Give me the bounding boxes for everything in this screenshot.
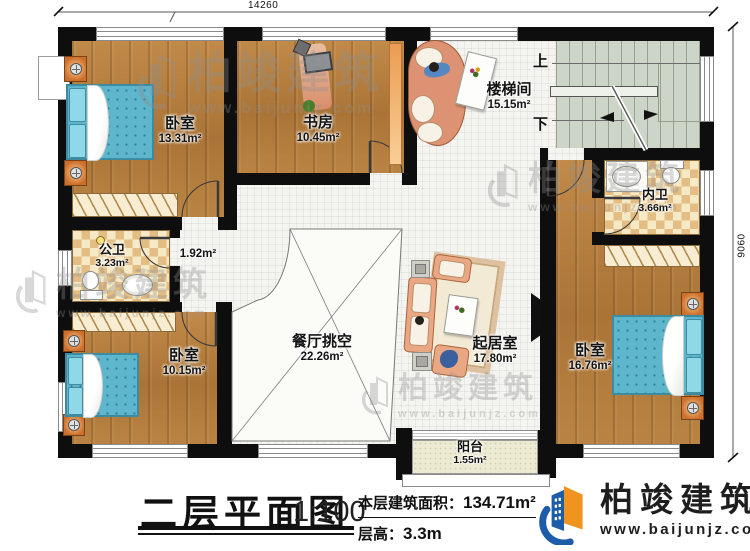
pillow <box>68 387 83 415</box>
nightstand <box>681 396 704 420</box>
wall <box>58 302 182 312</box>
room-area: 15.15m² <box>459 99 559 112</box>
nightstand <box>64 160 87 186</box>
room-name: 公卫 <box>62 243 162 258</box>
stairs-handrail <box>550 86 658 97</box>
window <box>92 444 188 458</box>
room-area: 1.55m² <box>420 455 520 467</box>
wall <box>540 160 556 444</box>
sofa-main <box>403 276 437 354</box>
watermark-logo-icon <box>16 268 50 314</box>
wall <box>218 217 237 230</box>
room-name: 卧室 <box>540 343 640 360</box>
nightstand <box>64 56 87 82</box>
side-table <box>412 352 432 371</box>
toilet-bowl <box>662 167 680 184</box>
brand-name: 柏竣建筑 <box>600 483 750 516</box>
wall <box>592 235 700 245</box>
room-label-hall: 1.92m² <box>168 248 228 261</box>
window <box>583 444 680 458</box>
floor-height-label: 层高： <box>358 526 403 543</box>
room-label-bedroom-top-left: 卧室 13.31m² <box>130 116 230 146</box>
room-name: 卧室 <box>134 348 234 365</box>
wall <box>170 230 180 238</box>
room-label-inner-bath: 内卫 3.66m² <box>605 188 705 214</box>
floor-stats: 本层建筑面积：134.71m² 层高：3.3m <box>358 492 536 544</box>
room-label-stair-hall: 楼梯间 15.15m² <box>459 82 559 112</box>
window <box>258 444 368 458</box>
stairs-leader-up <box>552 63 700 64</box>
person-head <box>415 316 424 325</box>
computer-monitor <box>303 51 333 74</box>
window <box>262 27 386 41</box>
room-label-dining-void: 餐厅挑空 22.26m² <box>272 334 372 364</box>
balcony-railing <box>402 474 550 487</box>
brand-logo: 柏竣建筑 www.baijunjz.com <box>538 483 750 545</box>
room-label-bedroom-bottom-left: 卧室 10.15m² <box>134 348 234 378</box>
person-head <box>429 62 439 72</box>
wall <box>402 173 417 185</box>
floor-area-row: 本层建筑面积：134.71m² <box>358 492 536 518</box>
room-name: 楼梯间 <box>459 82 559 99</box>
wall <box>584 148 714 160</box>
sofa-cushion <box>438 259 466 278</box>
sofa-seat <box>431 253 472 283</box>
room-name: 卧室 <box>130 116 230 133</box>
wall <box>237 173 370 185</box>
bay-box <box>12 378 61 437</box>
room-label-living: 起居室 17.80m² <box>445 336 545 366</box>
brand-logo-icon <box>538 483 590 545</box>
lamp-icon <box>68 419 80 431</box>
wall <box>592 160 604 198</box>
room-area: 22.26m² <box>272 351 372 364</box>
room-area: 10.15m² <box>134 365 234 378</box>
plant-icon <box>303 100 315 112</box>
window <box>430 27 518 41</box>
wall <box>170 266 180 302</box>
room-area: 13.31m² <box>130 133 230 146</box>
lamp-icon <box>70 63 82 75</box>
lamp-icon <box>687 402 699 414</box>
title-underline-2 <box>138 533 354 535</box>
floor-area-label: 本层建筑面积： <box>358 495 463 512</box>
sink-icon <box>612 166 641 187</box>
title-underline <box>138 526 354 530</box>
stair-opening-outline <box>658 63 702 122</box>
dimension-height: 9060 <box>737 226 748 266</box>
room-label-public-bath: 公卫 3.23m² <box>62 243 162 269</box>
dimension-width: 14260 <box>248 0 278 11</box>
toilet-bowl <box>82 271 99 290</box>
lamp-icon <box>687 298 699 310</box>
room-name: 起居室 <box>445 336 545 353</box>
nightstand <box>63 414 85 436</box>
pillow <box>686 319 702 355</box>
window <box>96 27 224 41</box>
bedroom-bottom-left-wardrobe <box>72 312 176 332</box>
lamp-icon <box>70 167 82 179</box>
room-name: 阳台 <box>420 440 520 455</box>
room-label-bedroom-right: 卧室 16.76m² <box>540 343 640 373</box>
room-label-study: 书房 10.45m² <box>268 115 368 145</box>
lamp-icon <box>68 335 80 347</box>
plan-scale: 1:100 <box>293 496 366 529</box>
sink-icon <box>122 274 153 296</box>
room-name: 餐厅挑空 <box>272 334 372 351</box>
nightstand <box>63 330 85 352</box>
stairs-leader-down <box>552 120 624 121</box>
flowers-icon <box>452 303 466 315</box>
sofa-cushion <box>417 122 443 143</box>
room-area: 1.92m² <box>168 248 228 261</box>
pillow <box>69 124 86 158</box>
room-name: 书房 <box>268 115 368 132</box>
balcony-wall <box>396 428 412 480</box>
side-table <box>411 260 430 278</box>
brand-site: www.baijunjz.com <box>600 521 750 538</box>
stairs-up-label: 上 <box>533 50 548 71</box>
wall <box>58 217 182 230</box>
coffee-table <box>443 294 478 337</box>
room-name: 内卫 <box>605 188 705 203</box>
room-area: 10.45m² <box>268 132 368 145</box>
flowers-icon <box>468 66 482 78</box>
floor-height-row: 层高：3.3m <box>358 523 536 544</box>
stairs-down-label: 下 <box>533 113 548 134</box>
blanket <box>662 316 684 396</box>
room-label-balcony: 阳台 1.55m² <box>420 440 520 466</box>
pillow <box>69 88 86 122</box>
pillow <box>686 357 702 393</box>
bedroom-top-left-wardrobe <box>72 193 178 217</box>
wall <box>540 148 548 160</box>
floor-height-value: 3.3m <box>403 524 442 543</box>
room-area: 3.23m² <box>62 258 162 270</box>
floorplan-page: 上 下 <box>0 0 750 551</box>
window <box>700 56 714 122</box>
balcony-wall <box>538 430 556 478</box>
floor-area-value: 134.71m² <box>463 493 536 512</box>
room-area: 17.80m² <box>445 353 545 366</box>
nightstand <box>681 292 704 316</box>
study-cabinet <box>389 43 402 165</box>
sofa-cushion <box>411 95 435 123</box>
toilet-icon <box>80 290 103 300</box>
pillow <box>68 357 83 385</box>
room-area: 3.66m² <box>605 203 705 215</box>
sofa-cushion <box>411 282 432 313</box>
bedroom-right-wardrobe <box>604 245 700 267</box>
room-area: 16.76m² <box>540 360 640 373</box>
